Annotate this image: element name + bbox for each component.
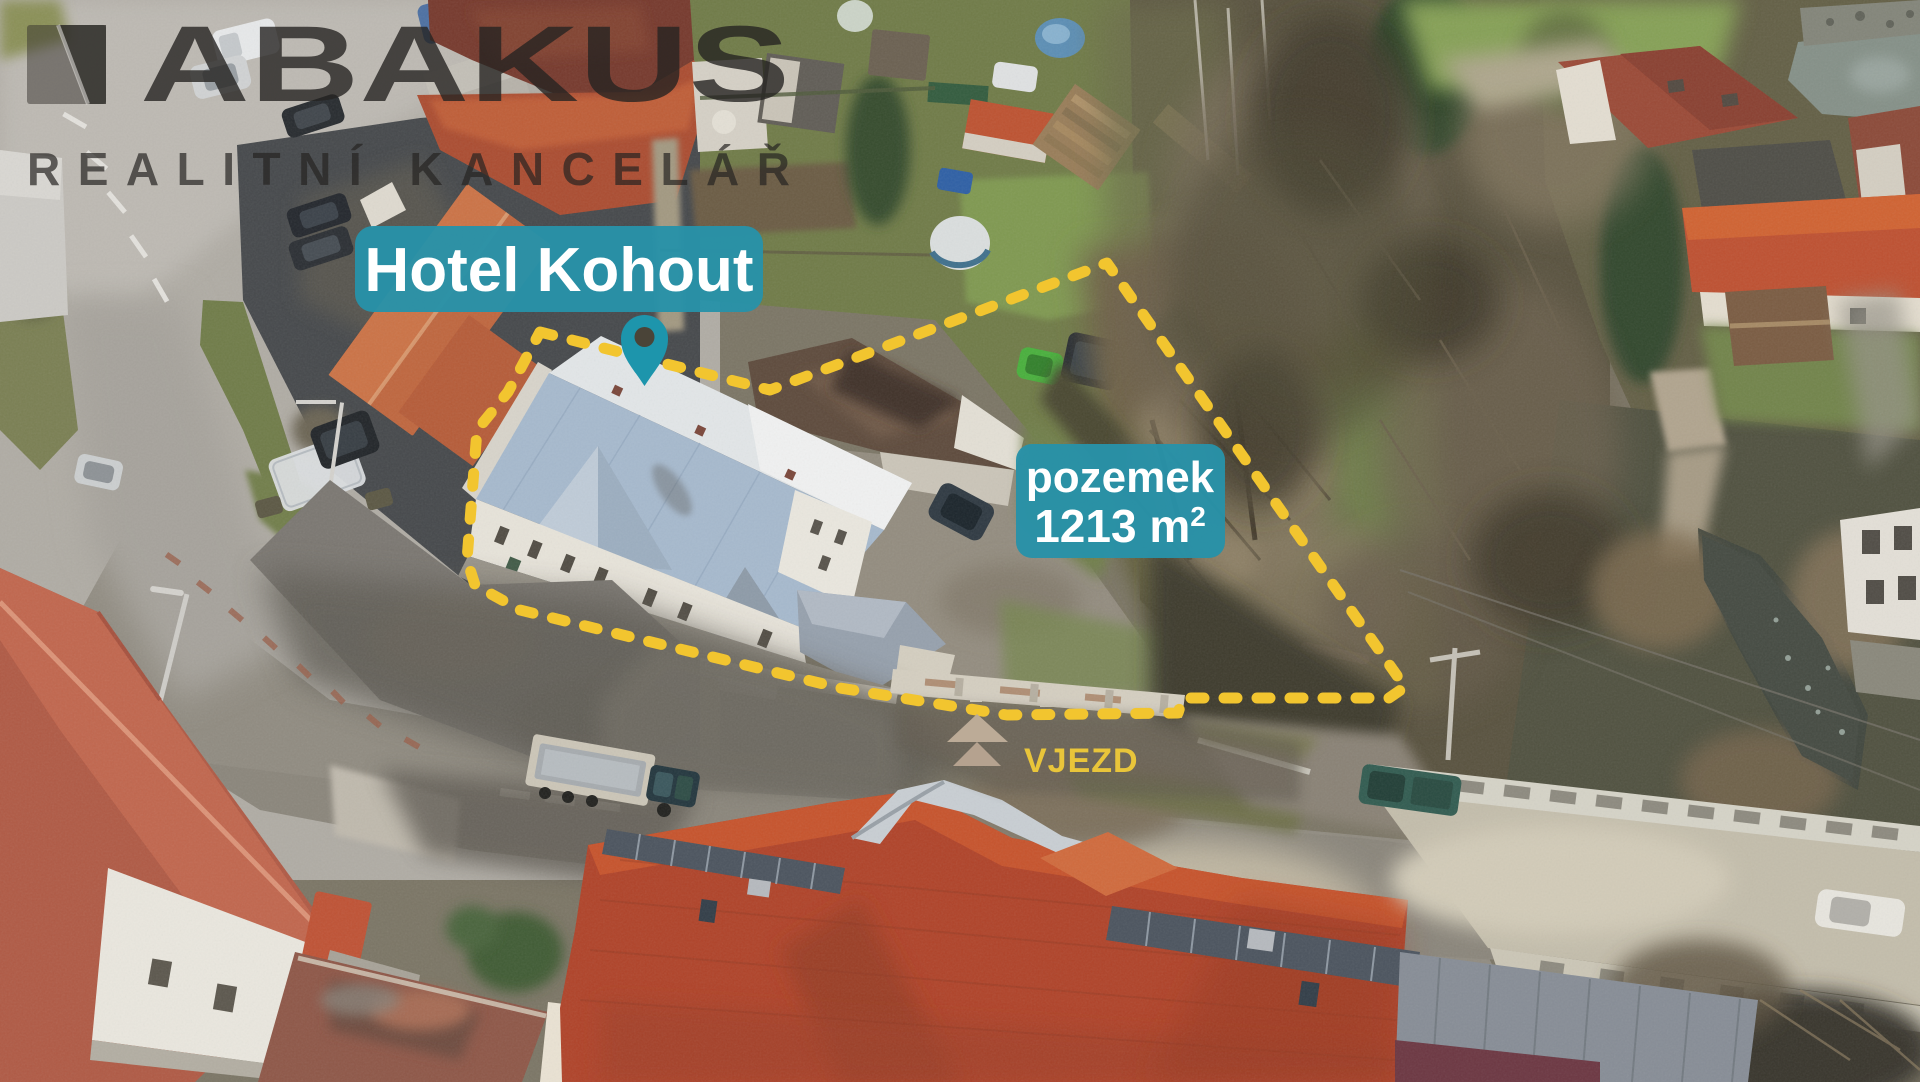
svg-text:ABAKUS: ABAKUS xyxy=(140,3,790,124)
svg-text:1213 m2: 1213 m2 xyxy=(1034,500,1206,552)
svg-text:Hotel Kohout: Hotel Kohout xyxy=(364,236,753,305)
svg-text:REALITNÍ KANCELÁŘ: REALITNÍ KANCELÁŘ xyxy=(27,143,790,195)
svg-text:VJEZD: VJEZD xyxy=(1024,742,1139,780)
svg-text:pozemek: pozemek xyxy=(1026,453,1215,502)
